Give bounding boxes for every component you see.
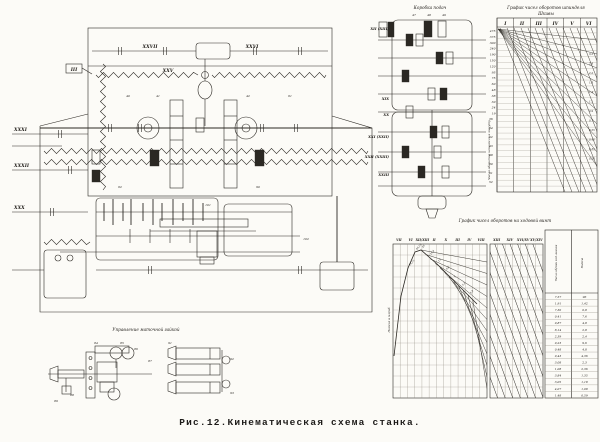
table-cell: 4,8 [581,347,587,351]
table-cell: 1,08 [581,387,588,391]
column-label: XIV [506,238,514,242]
table-cell: 0,43 [555,354,562,358]
ray-line [498,29,597,138]
table-cell: 4,8 [581,321,587,325]
axis-value: 38 [492,94,496,98]
ray-label: 0,9 [589,109,593,113]
column-label: X [444,238,448,242]
shaft-label: XXII (XXIII) [364,155,390,159]
table-cell: 3,05 [555,380,562,384]
hatch-line [500,28,565,192]
axis-value: 30 [492,100,496,104]
gear-block [402,70,409,82]
gear-block [436,52,443,64]
main-kinematic-diagram: XXVII XXVI XXV III XXXI XXXII XXX 404142… [12,28,372,312]
ray-line [449,277,487,331]
ray-line [498,29,597,68]
axis-label: Подача в мм/об [387,307,391,333]
ray-label: 1,1 [589,100,593,104]
gear-cone-right [224,100,237,188]
table-cell: 1,48 [555,393,562,397]
callout-label: 86 [134,347,138,351]
table-cell: 0,8 [582,308,587,312]
ray-label: 0,28 [589,157,595,161]
ray-label: 0,55 [589,128,595,132]
table-cell: 3,08 [555,361,562,365]
table-cell: 1,42 [581,302,588,306]
knob [222,380,230,388]
ray-label: 1,8 [589,81,593,85]
top-number: 47 [411,13,416,17]
detail-title: Управление маточной гайкой [112,327,179,332]
gear-block [402,146,409,158]
axis-label: Числа оборотов шпинделя в минуту [487,120,491,180]
table-cell: 2,39 [554,334,562,338]
shaft-label: XXX [13,205,25,211]
table-cell: 4,36 [580,354,588,358]
column-label: IV [551,21,558,27]
callout-label: 87 [148,359,152,363]
hatch-line [514,28,579,192]
column-label: VI [586,21,593,27]
shaft-label: XXXI [13,127,28,133]
column-label: IV [466,238,471,242]
callout-label: 41 [155,94,160,98]
axis-value: 150 [490,59,496,63]
feed-box-generated: 474849XII (XIII)XIXXXXXI (XXII)XXII (XXI… [364,13,493,186]
table-cell: 8,14 [555,328,562,332]
feed-chart-generated: VIIVIXII/XIIIIIXIIIIVVIIIXIIIXIVXVI/XVXV… [387,230,598,398]
column-label: III [534,21,542,27]
callout-label: 102 [303,237,309,241]
column-label: XV/XIV [529,238,543,242]
cylinder-body [176,364,220,375]
figure-caption: Рис.12.Кинематическая схема станка. [179,417,421,428]
ray-line [498,29,597,166]
table-cell: 2,36 [580,367,588,371]
column-label: VIII [478,238,485,242]
gear-block [440,88,447,100]
shaft-label: XXV [162,68,174,74]
table-header: Подача [580,257,584,269]
ray-line [498,29,597,152]
callout-label: 88 [70,393,74,397]
spring-path [44,239,90,244]
curve-label: 13 [437,258,442,263]
feed-box-diagram: Коробка подач 474849XII (XIII)XIXXXXXI (… [364,5,493,218]
cylinder-cap [168,362,176,376]
gear-block [430,126,437,138]
table-cell: 0,87 [555,321,562,325]
hatch-line [507,28,572,192]
spring-path [100,64,105,190]
shaft-label: XXIII [377,173,389,177]
callout-label: 84 [94,341,98,345]
axis-value: 75 [492,76,496,80]
callout-label: 90 [256,185,260,189]
table-cell: 2,3 [581,361,587,365]
spring-path [212,72,326,77]
table-cell: 7,6 [582,315,587,319]
callout-label: 92 [230,357,234,361]
ray-label: 3,5 [589,52,593,56]
axis-value: 240 [489,47,496,51]
callout-label: 61 [288,94,292,98]
curve-label: 5,2 [461,281,466,286]
column-label: II [432,238,436,242]
shaft-label: III [70,67,78,73]
table-header: Число об/мин ход. валика [554,244,558,281]
callout-label: 40 [125,94,130,98]
column-label: I [503,21,507,27]
axis-value: 475 [489,29,496,33]
callout-label: 89 [54,399,58,403]
table-cell: 0,23 [555,341,562,345]
motor-symbol [196,43,230,59]
cylinder-cap [168,380,176,394]
cylinder-body [176,382,220,393]
axis-value: 375 [490,35,496,39]
spring-path [44,148,368,153]
pulley-symbol [424,21,432,37]
shaft-label: XXVII [142,44,159,50]
axis-value: 24 [491,106,496,110]
ray-label: 0,45 [589,138,595,142]
scanned-figure-page: XXVII XXVI XXV III XXXI XXXII XXX 404142… [0,0,600,442]
gear-cone-left [170,100,183,188]
callout-label: 101 [205,203,211,207]
feed-motor-symbol [418,196,446,209]
axis-value: 19 [492,112,496,116]
ray-line [498,29,597,40]
callout-label: 93 [230,391,234,395]
feed-speed-chart: График чисел оборотов на ходовой винт VI… [387,218,598,398]
table-cell: 1,91 [555,302,562,306]
ray-label: 0,35 [589,147,595,151]
callout-label: 85 [120,341,124,345]
speed-chart-generated: IIIIIIIVVVI47537530024019015012095756048… [487,18,600,192]
lathe-bed-outline [40,114,372,312]
table-cell: 0,59 [581,393,588,397]
column-label: XII/XIII [415,238,430,242]
table-cell: 0,48 [555,347,562,351]
axis-value: 120 [490,64,496,68]
table-cell: 1,08 [555,367,562,371]
detail-generated: 848586878889919293 [54,341,234,403]
table-cell: 7,57 [555,295,562,299]
cylinder-body [176,348,220,359]
table-cell: 7,30 [555,308,562,312]
column-label: XIII [492,238,500,242]
table-cell: 1,35 [581,374,588,378]
gear-block [418,166,425,178]
table-cell: 96 [583,295,587,299]
spring-path [96,72,198,77]
ray-label: 2,8 [588,62,593,66]
axis-value: 190 [490,53,496,57]
ray-line [426,255,487,274]
axis-value: 95 [492,70,496,74]
shaft-label: XII (XIII) [369,27,389,31]
shaft-label: XXXII [13,163,30,169]
feed-box-title: Коробка подач [413,5,447,10]
table-cell: 2,4 [581,334,587,338]
axis-value: 300 [490,41,496,45]
callout-label: 62 [118,185,122,189]
chart-title: График чисел оборотов на ходовой винт [458,218,551,223]
chart-title: График чисел оборотов шпинделя [506,5,585,10]
hatch-line [528,28,593,192]
column-label: XVI/XV [516,238,530,242]
gear-block [406,34,413,46]
axis-value: 48 [491,88,496,92]
cylinder-cap [168,346,176,360]
figure-canvas: XXVII XXVI XXV III XXXI XXXII XXX 404142… [0,0,600,442]
table-cell: 1,18 [581,380,588,384]
knob [222,356,230,364]
apron-gear-cluster [96,198,218,260]
hatch-line [521,28,586,192]
shaft-label: XXI (XXII) [367,135,389,139]
callout-label: 91 [168,341,172,345]
halfnut-control-detail: Управление маточной гайкой 8485868788899… [48,327,234,403]
ray-label: 0,7 [589,119,593,123]
column-label: III [454,238,460,242]
top-number: 49 [441,13,446,17]
table-cell: 9,6 [582,341,587,345]
hatch-line [556,28,600,192]
table-cell: 4,07 [554,387,562,391]
table-cell: 2,8 [581,328,587,332]
curve-label: 3,8 [469,289,474,294]
shaft-label: XIX [381,97,389,101]
chart-subtitle: Шкивы [537,11,554,16]
table-cell: 0,41 [555,315,562,319]
shaft-label: XX [382,113,389,117]
column-label: V [570,21,574,27]
axis-value: 60 [492,82,496,86]
ray-label: 1,4 [589,90,593,94]
top-number: 48 [426,13,431,17]
ray-line [468,295,487,377]
column-label: II [519,21,525,27]
callout-label: 42 [245,94,250,98]
table-cell: 3,84 [555,374,562,378]
shaft-label: XXVI [245,44,260,50]
ray-label: 2,2 [588,71,593,75]
column-label: VII [396,238,402,242]
spindle-speed-chart: График чисел оборотов шпинделя Шкивы III… [487,5,600,192]
column-label: VI [409,238,413,242]
